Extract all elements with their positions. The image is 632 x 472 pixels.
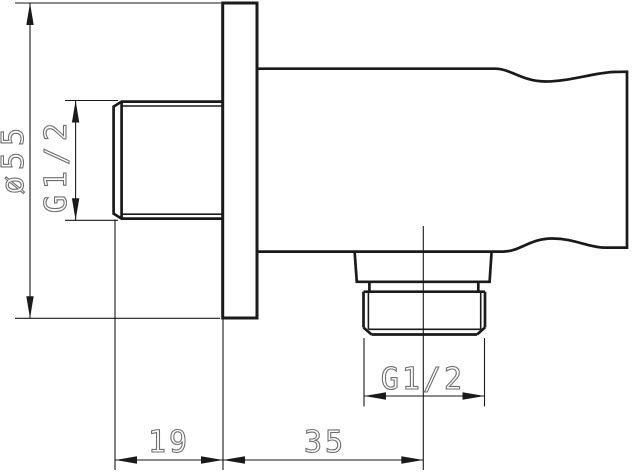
label-outlet-thread: G1/2 — [381, 362, 465, 397]
dim-offset-arrow-left-icon — [223, 456, 245, 463]
dim-outlet-arrow-right-icon — [463, 392, 485, 399]
wall-flange-plate — [223, 3, 257, 318]
dimension-lines — [15, 3, 485, 470]
technical-drawing: ø55 G1/2 G1/2 19 35 — [0, 0, 632, 472]
label-outlet-offset: 35 — [304, 425, 346, 460]
label-flange-diameter: ø55 — [0, 122, 31, 194]
dim-diameter-arrow-down-icon — [26, 296, 33, 318]
label-depth: 19 — [148, 425, 190, 460]
dimension-labels: ø55 G1/2 G1/2 19 35 — [0, 117, 465, 460]
dim-depth-arrow-right-icon — [201, 456, 223, 463]
technical-drawing-canvas: ø55 G1/2 G1/2 19 35 — [0, 0, 632, 472]
inlet-thread-outline — [114, 102, 223, 219]
dim-diameter-arrow-up-icon — [26, 3, 33, 25]
dim-offset-arrow-right-icon — [401, 456, 423, 463]
body-outline — [257, 69, 627, 252]
label-inlet-thread: G1/2 — [39, 117, 74, 213]
dim-depth-arrow-left-icon — [115, 456, 137, 463]
part-outline — [114, 3, 627, 335]
